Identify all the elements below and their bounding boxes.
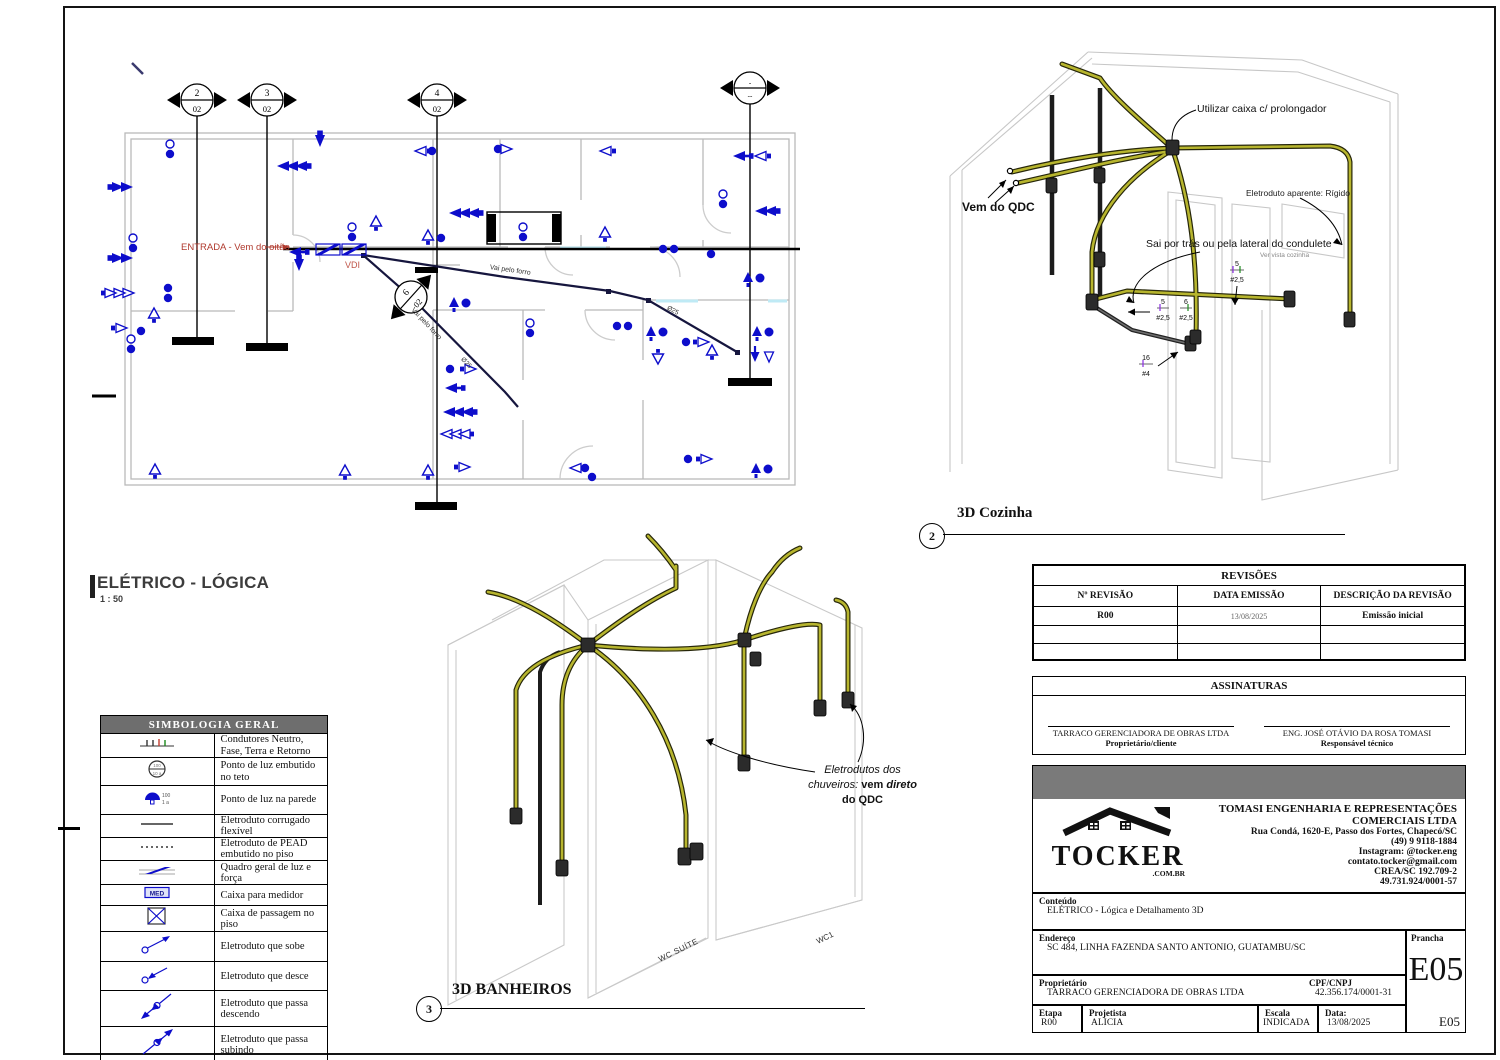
- wall-light-icon: 1001 a: [137, 786, 177, 809]
- revisions-title: REVISÕES: [1034, 566, 1465, 586]
- signature-owner: TARRACO GERENCIADORA DE OBRAS LTDA Propr…: [1033, 696, 1249, 748]
- svg-text:5: 5: [1161, 299, 1165, 306]
- legend-table: SIMBOLOGIA GERAL Condutores Neutro, Fase…: [100, 715, 328, 1060]
- ceiling-light-icon: 10010 a: [137, 758, 177, 780]
- annotation-sai-por-tras: Sai por trás ou pela lateral do condulet…: [1146, 238, 1332, 250]
- vdi-label: VDI: [345, 260, 360, 270]
- annotation-ver-vista: Ver vista cozinha: [1260, 252, 1309, 259]
- trim-slash: [132, 63, 143, 74]
- svg-text:3: 3: [265, 89, 270, 99]
- etapa-cell: Etapa R00: [1032, 1005, 1082, 1033]
- svg-text:#4: #4: [1142, 371, 1150, 378]
- flex-conduit-icon: [137, 818, 177, 830]
- svg-text:--: --: [748, 92, 753, 100]
- svg-text:100: 100: [162, 793, 171, 799]
- wc-suite-label: WC SUÍTE: [657, 937, 700, 964]
- pead-conduit-icon: [137, 841, 177, 853]
- view-number-cozinha: 2: [919, 523, 945, 549]
- svg-text:#2,5: #2,5: [1179, 315, 1193, 322]
- endereco-row: Endereço SC 484, LINHA FAZENDA SANTO ANT…: [1032, 930, 1406, 975]
- signatures-title: ASSINATURAS: [1033, 677, 1465, 696]
- plan-windows: [560, 248, 787, 301]
- prancha-cell: Prancha E05 E05: [1406, 930, 1466, 1033]
- floor-box-icon: [137, 906, 177, 926]
- meter-box-icon: MED: [137, 885, 177, 900]
- proprietario-row: Proprietário TARRACO GERENCIADORA DE OBR…: [1032, 975, 1406, 1005]
- annotation-eletroduto-aparente: Eletroduto aparente: Rígido: [1246, 188, 1350, 198]
- conduit-down-icon: [137, 962, 177, 985]
- legend-title: SIMBOLOGIA GERAL: [101, 716, 328, 734]
- revisions-header-num: Nº REVISÃO: [1034, 586, 1178, 607]
- svg-text:02: 02: [263, 104, 272, 114]
- plan-title-bar: [90, 575, 95, 598]
- conduit-up-icon: [137, 932, 177, 956]
- view-number-banheiros: 3: [416, 996, 442, 1022]
- revision-row-date: 13/08/2025: [1177, 607, 1321, 626]
- section-marker-3: 3 02: [237, 84, 297, 116]
- drawing-sheet: 2 02 3 02 4 02 - -- 6 02: [0, 0, 1500, 1060]
- etapa-row: Etapa R00 Projetista ALICIA Escala INDIC…: [1032, 1005, 1406, 1033]
- escala-cell: Escala INDICADA: [1258, 1005, 1318, 1033]
- company-logo-text: TOCKER: [1033, 844, 1203, 869]
- conduit-pass-down-icon: [137, 991, 177, 1021]
- revisions-header-date: DATA EMISSÃO: [1177, 586, 1321, 607]
- trim-mark: [58, 827, 80, 830]
- conduit-pass-up-icon: [137, 1027, 177, 1058]
- signatures-block: ASSINATURAS TARRACO GERENCIADORA DE OBRA…: [1032, 676, 1466, 755]
- svg-text:02: 02: [433, 104, 442, 114]
- svg-text:5: 5: [1235, 261, 1239, 268]
- svg-text:1 a: 1 a: [162, 800, 169, 806]
- view-title-line-cozinha: [943, 534, 1345, 535]
- section-marker-blank: - --: [720, 72, 780, 104]
- plan-title: ELÉTRICO - LÓGICA: [97, 573, 269, 593]
- sheet-number: E05: [1407, 951, 1465, 989]
- passage-boxes: [172, 214, 772, 510]
- banheiros-leaders: [706, 704, 864, 772]
- conteudo-row: Conteúdo ELÉTRICO - Lógica e Detalhament…: [1032, 893, 1466, 930]
- view-title-line-banheiros: [440, 1008, 865, 1009]
- company-info: TOMASI ENGENHARIA E REPRESENTAÇÕES COMER…: [1203, 803, 1465, 887]
- svg-text:2: 2: [195, 89, 200, 99]
- panel-icon: [137, 861, 177, 879]
- company-logo: TOCKER .COM.BR: [1033, 803, 1203, 887]
- section-lines: [197, 104, 750, 502]
- tocker-roof-icon: [1058, 803, 1178, 839]
- annotation-caixa-prolongador: Utilizar caixa c/ prolongador: [1197, 103, 1327, 115]
- annotation-eletrodutos-chuveiros: Eletrodutos dos chuveiros: vem direto do…: [790, 763, 935, 808]
- view-title-banheiros: 3D BANHEIROS: [452, 981, 572, 999]
- annotation-vem-do-qdc: Vem do QDC: [962, 200, 1035, 214]
- projetista-cell: Projetista ALICIA: [1082, 1005, 1258, 1033]
- view-title-cozinha: 3D Cozinha: [957, 505, 1032, 522]
- electrical-symbols: [101, 131, 781, 482]
- revisions-table: REVISÕES Nº REVISÃO DATA EMISSÃO DESCRIÇ…: [1032, 564, 1466, 661]
- revision-row-num: R00: [1034, 607, 1178, 626]
- sheet-number-small: E05: [1439, 1014, 1460, 1030]
- cpf-cell: CPF/CNPJ 42.356.174/0001-31: [1291, 976, 1407, 1004]
- conductors-icon: [137, 734, 177, 752]
- svg-text:#2,5: #2,5: [1230, 277, 1244, 284]
- svg-text:100: 100: [153, 763, 161, 768]
- floor-plan-view: 2 02 3 02 4 02 - -- 6 02: [85, 45, 825, 550]
- company-gray-bar: [1033, 766, 1465, 799]
- svg-text:MED: MED: [150, 891, 165, 898]
- cozinha-walls: [950, 52, 1398, 500]
- revision-row-desc: Emissão inicial: [1321, 607, 1465, 626]
- svg-text:#2,5: #2,5: [1156, 315, 1170, 322]
- plan-scale: 1 : 50: [100, 594, 123, 604]
- conduit-diagonals: [363, 255, 737, 407]
- revisions-header-desc: DESCRIÇÃO DA REVISÃO: [1321, 586, 1465, 607]
- signature-engineer: ENG. JOSÉ OTÁVIO DA ROSA TOMASI Responsá…: [1249, 696, 1465, 748]
- company-block: TOCKER .COM.BR TOMASI ENGENHARIA E REPRE…: [1032, 765, 1466, 893]
- section-marker-2: 2 02: [167, 84, 227, 116]
- data-cell: Data: 13/08/2025: [1318, 1005, 1406, 1033]
- circuit-labels: 5 #2,5 5 #2,5 6 #2,5 16 #4: [1139, 261, 1244, 378]
- svg-text:10 a: 10 a: [153, 771, 162, 776]
- cozinha-3d-view: 5 #2,5 5 #2,5 6 #2,5 16 #4: [940, 38, 1400, 538]
- svg-text:02: 02: [193, 104, 202, 114]
- svg-text:4: 4: [435, 89, 440, 99]
- wc1-label: WC1: [815, 930, 835, 946]
- section-marker-4: 4 02: [407, 84, 467, 116]
